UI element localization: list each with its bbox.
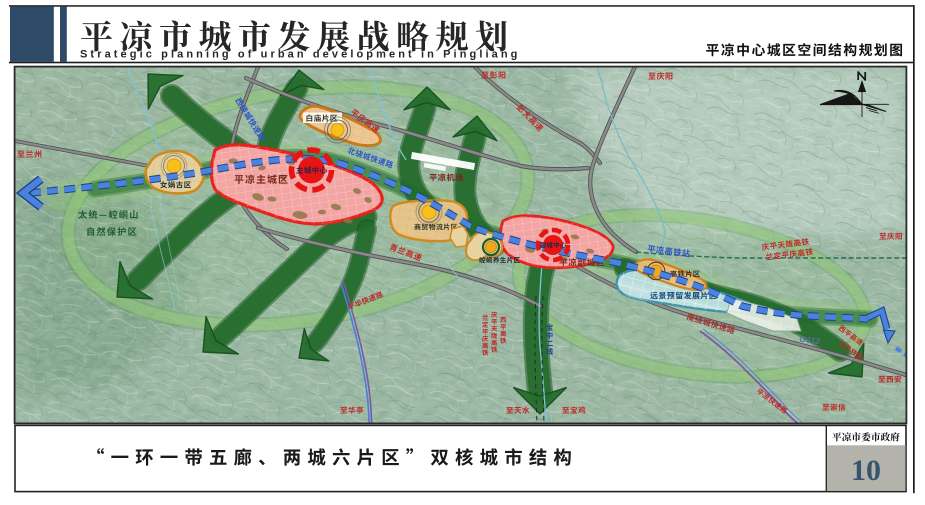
svg-text:Strategic planning of urban de: Strategic planning of urban development …	[80, 49, 521, 61]
svg-text:10: 10	[851, 454, 881, 487]
